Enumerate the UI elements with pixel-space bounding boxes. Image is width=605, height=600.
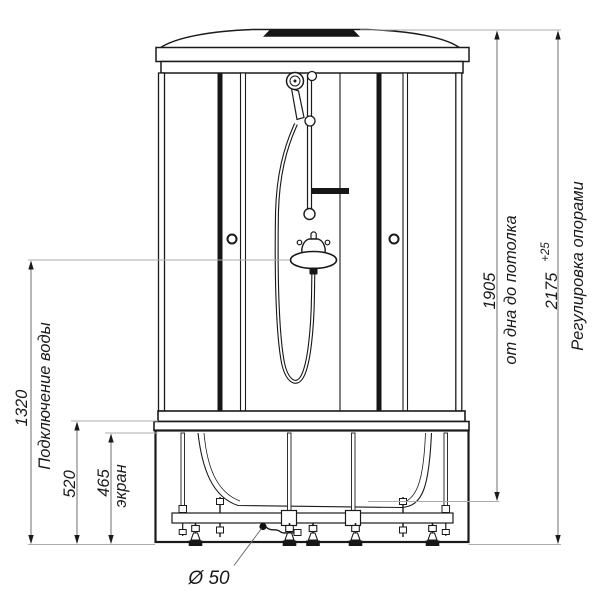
support-rod — [181, 433, 185, 513]
rod-nut — [179, 506, 187, 513]
tray-rim-lower — [154, 422, 469, 431]
foot-pad — [306, 541, 320, 547]
mixer-lever — [311, 232, 316, 239]
arrow-up-icon — [555, 31, 560, 40]
arrow-down-icon — [28, 535, 33, 544]
rail-clamp — [305, 116, 315, 126]
right-post — [456, 73, 462, 411]
arrow-up-icon — [108, 434, 113, 443]
shower-rail — [308, 75, 312, 209]
glass-edge-left — [241, 73, 246, 411]
foot-pad — [283, 541, 297, 547]
glass-edge-right — [403, 73, 408, 411]
shower-rail-top-knob — [308, 72, 317, 81]
arrow-up-icon — [28, 261, 33, 270]
support-rod — [352, 433, 356, 511]
mixer-plate — [291, 252, 337, 269]
tray-base — [154, 411, 469, 546]
foot-pad — [189, 541, 203, 547]
drain-fitting — [294, 530, 301, 536]
tray-rim-top — [158, 411, 465, 422]
support-rail — [172, 513, 453, 523]
drain-point — [259, 523, 266, 530]
label-floor-to-ceiling: от дна до потолка — [502, 215, 520, 364]
shower-head-dot — [294, 80, 297, 83]
shower-handle — [292, 89, 305, 120]
label-support-adjustment: Регулировка опорами — [569, 181, 587, 350]
roof-cap — [263, 30, 360, 37]
arrow-down-icon — [494, 492, 499, 501]
shower-column — [277, 72, 349, 382]
door-strip-left — [218, 73, 223, 411]
dim-text-floor-to-ceiling: 1905 — [481, 272, 499, 310]
arrow-up-icon — [494, 31, 499, 40]
arrow-up-icon — [74, 422, 79, 431]
dim-text-drain-diameter: Ø 50 — [187, 568, 230, 589]
mixer-screw-left — [297, 240, 302, 245]
support-bracket — [346, 511, 361, 526]
shower-shelf — [311, 188, 349, 194]
rod-nut — [442, 506, 450, 513]
arrow-down-icon — [555, 535, 560, 544]
label-screen: экран — [112, 464, 130, 507]
dim-text-water-connection: 1320 — [13, 389, 31, 427]
label-water-connection: Подключение воды — [36, 322, 54, 469]
arrow-down-icon — [74, 535, 79, 544]
top-frame-bar — [156, 48, 469, 62]
foot-pad — [426, 541, 440, 547]
door-strip-right — [377, 73, 382, 411]
arrow-down-icon — [108, 535, 113, 544]
foot-pad — [349, 541, 363, 547]
left-post — [159, 73, 165, 411]
shower-cabin-drawing: 1320 Подключение воды 520 465 экран 1905… — [0, 0, 605, 600]
technical-drawing-page: 1320 Подключение воды 520 465 экран 1905… — [0, 0, 605, 600]
dim-text-tray-height: 520 — [61, 469, 79, 497]
dim-tolerance-total-height: +25 — [540, 242, 552, 262]
support-rod — [288, 433, 292, 511]
mixer-spout — [310, 268, 318, 275]
shower-rail-end-ball — [304, 209, 315, 220]
door-handle-left — [228, 235, 237, 244]
door-handle-right — [390, 235, 399, 244]
dim-text-screen-height: 465 — [95, 468, 113, 496]
mixer-screw-right — [325, 240, 330, 245]
cabin-roof — [156, 30, 469, 74]
dim-text-total-height: 2175 — [543, 272, 561, 311]
